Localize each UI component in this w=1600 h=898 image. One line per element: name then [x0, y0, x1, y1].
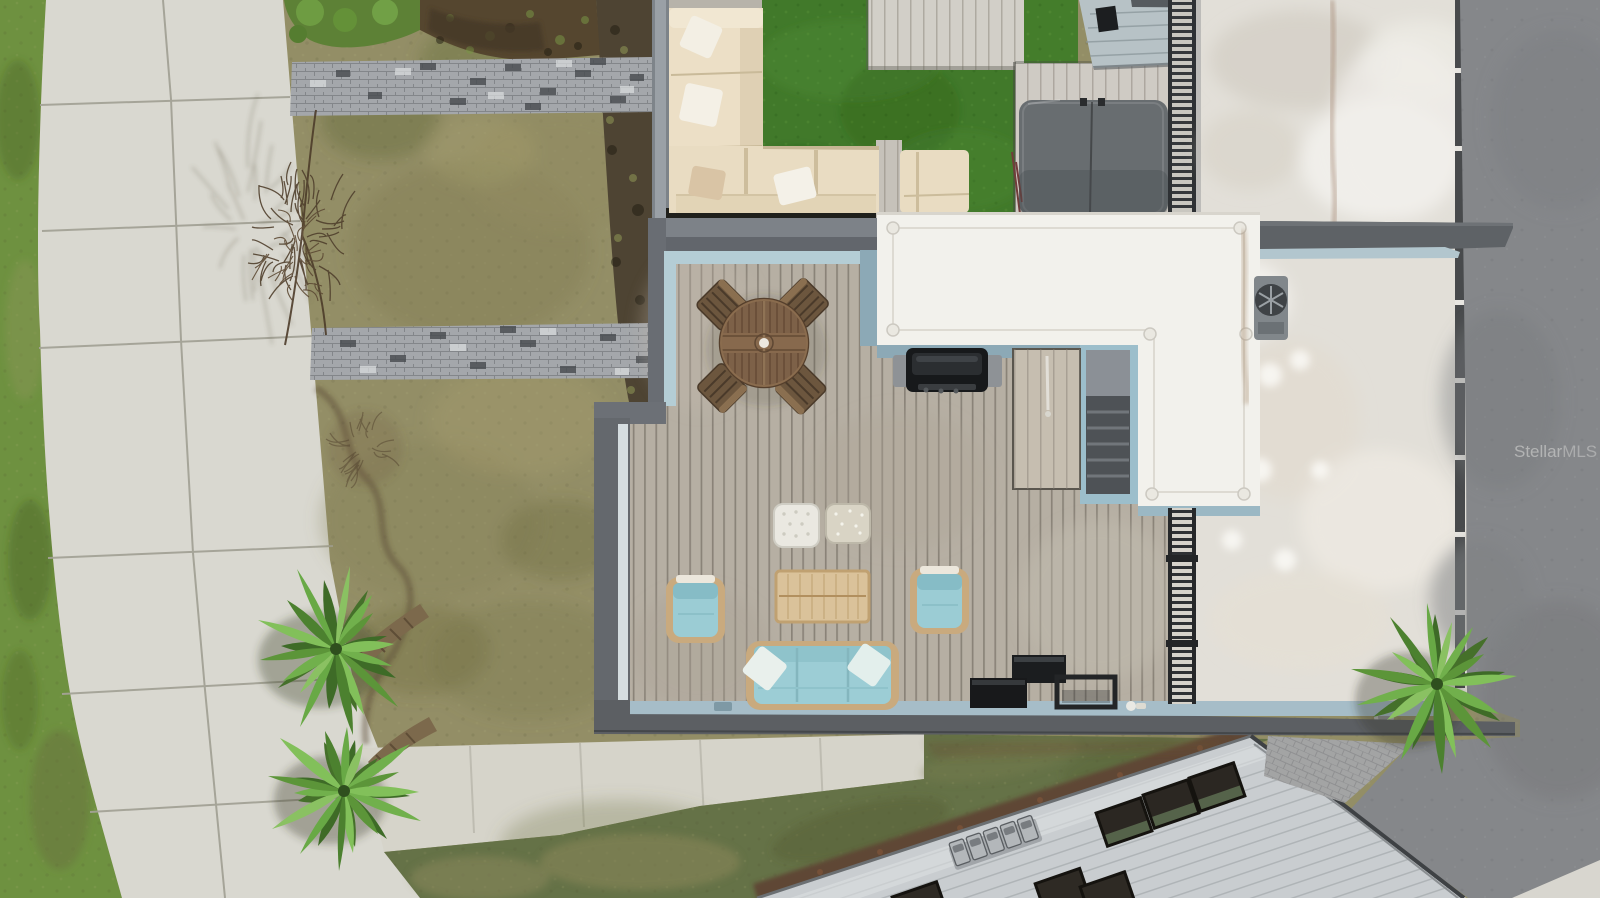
svg-text:StellarMLS: StellarMLS — [1514, 442, 1597, 461]
